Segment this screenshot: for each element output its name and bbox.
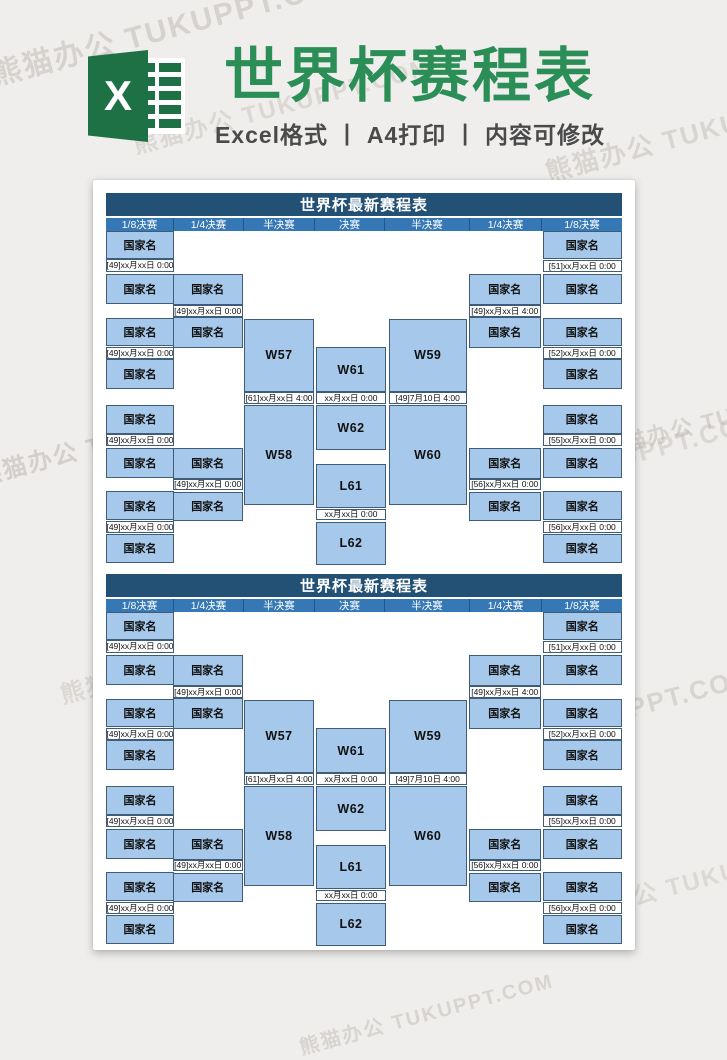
team-cell: 国家名 [106, 405, 174, 434]
team-cell: 国家名 [469, 698, 541, 729]
date-cell: [56]xx月xx日 0:00 [543, 521, 623, 533]
team-cell: 国家名 [543, 612, 623, 640]
round-header: 1/4决赛 [469, 599, 541, 612]
page-subtitle: Excel格式 丨 A4打印 丨 内容可修改 [210, 116, 610, 150]
team-cell: 国家名 [543, 534, 623, 564]
date-cell: [49]xx月xx日 0:00 [106, 434, 174, 446]
date-cell: [51]xx月xx日 0:00 [543, 641, 623, 654]
team-cell: 国家名 [543, 405, 623, 434]
date-cell: [49]7月10日 4:00 [389, 392, 468, 404]
match-cell: W58 [244, 405, 314, 505]
match-cell: W62 [316, 786, 386, 831]
date-cell: [49]xx月xx日 0:00 [173, 860, 243, 872]
watermark: 熊猫办公 TUKUPPT.COM [296, 965, 557, 1060]
team-cell: 国家名 [106, 915, 174, 945]
team-cell: 国家名 [543, 786, 623, 815]
round-header: 1/4决赛 [469, 218, 541, 231]
date-cell: [49]xx月xx日 0:00 [106, 640, 174, 654]
match-cell: L62 [316, 903, 386, 947]
date-cell: [56]xx月xx日 0:00 [469, 860, 541, 872]
date-cell: [55]xx月xx日 0:00 [543, 434, 623, 446]
match-cell: L61 [316, 845, 386, 889]
team-cell: 国家名 [469, 448, 541, 479]
team-cell: 国家名 [469, 274, 541, 306]
round-header: 半决赛 [384, 218, 469, 231]
team-cell: 国家名 [543, 491, 623, 520]
team-cell: 国家名 [543, 915, 623, 945]
bracket-title: 世界杯最新赛程表 [106, 574, 622, 597]
date-cell: [49]xx月xx日 0:00 [106, 521, 174, 533]
date-cell: [49]xx月xx日 4:00 [469, 305, 541, 317]
team-cell: 国家名 [173, 829, 243, 860]
round-header: 半决赛 [384, 599, 469, 612]
excel-cover: X [88, 50, 148, 142]
team-cell: 国家名 [543, 274, 623, 304]
page-title: 世界杯赛程表 [210, 40, 610, 112]
match-cell: W61 [316, 347, 386, 392]
team-cell: 国家名 [173, 448, 243, 479]
team-cell: 国家名 [173, 698, 243, 729]
team-cell: 国家名 [106, 655, 174, 685]
excel-icon: X [88, 50, 185, 142]
team-cell: 国家名 [543, 829, 623, 860]
excel-x-letter: X [104, 75, 132, 117]
match-cell: W57 [244, 700, 314, 774]
team-cell: 国家名 [106, 448, 174, 479]
round-header: 决赛 [314, 218, 384, 231]
team-cell: 国家名 [106, 740, 174, 770]
date-cell: [49]xx月xx日 0:00 [173, 305, 243, 317]
round-header: 1/8决赛 [541, 218, 622, 231]
date-cell: [61]xx月xx日 4:00 [244, 773, 314, 785]
team-cell: 国家名 [543, 231, 623, 259]
document-page: 世界杯最新赛程表1/8决赛1/4决赛半决赛决赛半决赛1/4决赛1/8决赛国家名[… [93, 180, 635, 950]
title-block: 世界杯赛程表 Excel格式 丨 A4打印 丨 内容可修改 [210, 40, 610, 150]
team-cell: 国家名 [469, 829, 541, 860]
team-cell: 国家名 [543, 872, 623, 901]
date-cell: [49]xx月xx日 0:00 [173, 479, 243, 491]
team-cell: 国家名 [469, 873, 541, 902]
round-header: 半决赛 [243, 599, 314, 612]
team-cell: 国家名 [106, 612, 174, 640]
team-cell: 国家名 [173, 873, 243, 902]
team-cell: 国家名 [469, 655, 541, 687]
match-cell: W60 [389, 405, 468, 505]
date-cell: xx月xx日 0:00 [316, 773, 386, 785]
match-cell: W59 [389, 700, 468, 774]
bracket-table-1: 世界杯最新赛程表1/8决赛1/4决赛半决赛决赛半决赛1/4决赛1/8决赛国家名[… [106, 193, 622, 565]
team-cell: 国家名 [106, 829, 174, 860]
match-cell: L61 [316, 464, 386, 508]
team-cell: 国家名 [543, 318, 623, 347]
date-cell: [52]xx月xx日 0:00 [543, 728, 623, 740]
team-cell: 国家名 [106, 318, 174, 347]
team-cell: 国家名 [469, 492, 541, 521]
team-cell: 国家名 [173, 274, 243, 306]
round-header: 决赛 [314, 599, 384, 612]
team-cell: 国家名 [106, 274, 174, 304]
date-cell: [55]xx月xx日 0:00 [543, 815, 623, 827]
date-cell: [49]xx月xx日 4:00 [469, 686, 541, 698]
team-cell: 国家名 [106, 359, 174, 389]
team-cell: 国家名 [543, 359, 623, 389]
team-cell: 国家名 [106, 786, 174, 815]
round-header: 1/8决赛 [106, 218, 173, 231]
team-cell: 国家名 [106, 872, 174, 901]
match-cell: W59 [389, 319, 468, 393]
bracket-table-2: 世界杯最新赛程表1/8决赛1/4决赛半决赛决赛半决赛1/4决赛1/8决赛国家名[… [106, 574, 622, 946]
match-cell: W61 [316, 728, 386, 773]
date-cell: [49]xx月xx日 0:00 [106, 815, 174, 827]
round-header: 1/8决赛 [541, 599, 622, 612]
date-cell: [49]xx月xx日 0:00 [106, 347, 174, 359]
team-cell: 国家名 [106, 491, 174, 520]
match-cell: W57 [244, 319, 314, 393]
team-cell: 国家名 [106, 534, 174, 564]
date-cell: [56]xx月xx日 0:00 [469, 479, 541, 491]
team-cell: 国家名 [106, 231, 174, 259]
date-cell: [49]xx月xx日 0:00 [106, 259, 174, 273]
header: X 世界杯赛程表 Excel格式 丨 A4打印 丨 内容可修改 [0, 0, 727, 165]
date-cell: [49]7月10日 4:00 [389, 773, 468, 785]
team-cell: 国家名 [543, 740, 623, 770]
team-cell: 国家名 [543, 448, 623, 479]
date-cell: xx月xx日 0:00 [316, 509, 386, 521]
team-cell: 国家名 [173, 655, 243, 687]
round-header: 1/8决赛 [106, 599, 173, 612]
date-cell: [61]xx月xx日 4:00 [244, 392, 314, 404]
match-cell: L62 [316, 522, 386, 566]
team-cell: 国家名 [469, 317, 541, 348]
date-cell: xx月xx日 0:00 [316, 890, 386, 902]
team-cell: 国家名 [173, 492, 243, 521]
bracket-title: 世界杯最新赛程表 [106, 193, 622, 216]
date-cell: [51]xx月xx日 0:00 [543, 260, 623, 273]
date-cell: [49]xx月xx日 0:00 [106, 728, 174, 740]
match-cell: W62 [316, 405, 386, 450]
round-header: 1/4决赛 [173, 218, 243, 231]
date-cell: [49]xx月xx日 0:00 [106, 902, 174, 914]
round-header: 1/4决赛 [173, 599, 243, 612]
date-cell: xx月xx日 0:00 [316, 392, 386, 404]
date-cell: [52]xx月xx日 0:00 [543, 347, 623, 359]
template-preview: 熊猫办公 TUKUPPT.COM熊猫办公 TUKUPPT.COM熊猫办公 TUK… [0, 0, 727, 1027]
match-cell: W60 [389, 786, 468, 886]
date-cell: [56]xx月xx日 0:00 [543, 902, 623, 914]
date-cell: [49]xx月xx日 0:00 [173, 686, 243, 698]
team-cell: 国家名 [543, 699, 623, 728]
match-cell: W58 [244, 786, 314, 886]
team-cell: 国家名 [173, 317, 243, 348]
team-cell: 国家名 [543, 655, 623, 685]
team-cell: 国家名 [106, 699, 174, 728]
round-header: 半决赛 [243, 218, 314, 231]
